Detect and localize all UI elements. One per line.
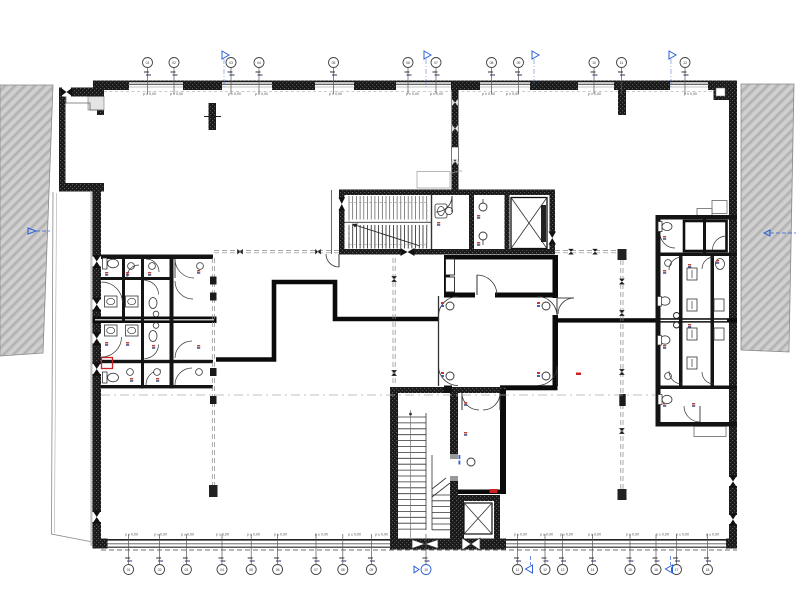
svg-text:p ± 0,00: p ± 0,00	[125, 532, 138, 536]
svg-text:04: 04	[257, 61, 261, 65]
svg-text:p ± 0,00: p ± 0,00	[506, 92, 519, 96]
svg-text:03: 03	[185, 568, 189, 572]
svg-text:01: 01	[127, 568, 131, 572]
svg-text:06: 06	[406, 61, 410, 65]
svg-text:p ± 0,00: p ± 0,00	[514, 532, 527, 536]
svg-text:p ± 0,00: p ± 0,00	[656, 532, 669, 536]
svg-text:15: 15	[628, 568, 632, 572]
svg-text:18: 18	[706, 568, 710, 572]
svg-text:08: 08	[341, 568, 345, 572]
svg-text:02: 02	[158, 568, 162, 572]
svg-text:p ± 0,00: p ± 0,00	[676, 532, 689, 536]
svg-text:p ± 0,00: p ± 0,00	[228, 92, 241, 96]
svg-text:06: 06	[276, 568, 280, 572]
svg-text:p ± 0,00: p ± 0,00	[216, 532, 229, 536]
svg-text:p ± 0,00: p ± 0,00	[274, 532, 287, 536]
svg-text:05: 05	[332, 61, 336, 65]
svg-text:11: 11	[620, 61, 624, 65]
svg-text:p ± 0,00: p ± 0,00	[154, 532, 167, 536]
svg-text:14: 14	[591, 568, 595, 572]
svg-text:09: 09	[517, 61, 521, 65]
svg-text:p ± 0,00: p ± 0,00	[181, 532, 194, 536]
svg-text:p ± 0,00: p ± 0,00	[540, 532, 553, 536]
svg-text:05: 05	[249, 568, 253, 572]
svg-text:16: 16	[654, 568, 658, 572]
svg-text:13: 13	[561, 568, 565, 572]
svg-text:p ± 0,00: p ± 0,00	[315, 532, 328, 536]
svg-text:p ± 0,00: p ± 0,00	[406, 92, 419, 96]
svg-text:p ± 0,00: p ± 0,00	[430, 92, 443, 96]
svg-text:17: 17	[675, 568, 679, 572]
svg-text:01: 01	[146, 61, 150, 65]
svg-text:p ± 0,00: p ± 0,00	[588, 92, 601, 96]
svg-text:p ± 0,00: p ± 0,00	[482, 92, 495, 96]
svg-text:p ± 0,00: p ± 0,00	[375, 532, 388, 536]
svg-text:07: 07	[434, 61, 438, 65]
svg-text:11: 11	[516, 568, 520, 572]
svg-text:08: 08	[490, 61, 494, 65]
svg-text:p ± 0,00: p ± 0,00	[170, 92, 183, 96]
svg-text:p ± 0,00: p ± 0,00	[588, 532, 601, 536]
svg-text:p ± 0,00: p ± 0,00	[247, 532, 260, 536]
svg-text:02: 02	[172, 61, 176, 65]
svg-text:10: 10	[592, 61, 596, 65]
svg-text:07: 07	[314, 568, 318, 572]
svg-text:p ± 0,00: p ± 0,00	[560, 532, 573, 536]
svg-text:p ± 0,00: p ± 0,00	[143, 92, 156, 96]
svg-text:p ± 0,00: p ± 0,00	[348, 532, 361, 536]
svg-text:p ± 0,00: p ± 0,00	[329, 92, 342, 96]
svg-text:p ± 0,00: p ± 0,00	[255, 92, 268, 96]
svg-text:09: 09	[370, 568, 374, 572]
svg-text:p ± 0,00: p ± 0,00	[706, 532, 719, 536]
svg-text:p ± 0,00: p ± 0,00	[684, 92, 697, 96]
svg-text:12: 12	[543, 568, 547, 572]
svg-text:03: 03	[229, 61, 233, 65]
svg-text:10: 10	[424, 568, 428, 572]
svg-text:12: 12	[683, 61, 687, 65]
svg-text:p ± 0,00: p ± 0,00	[626, 532, 639, 536]
svg-text:04: 04	[220, 568, 224, 572]
